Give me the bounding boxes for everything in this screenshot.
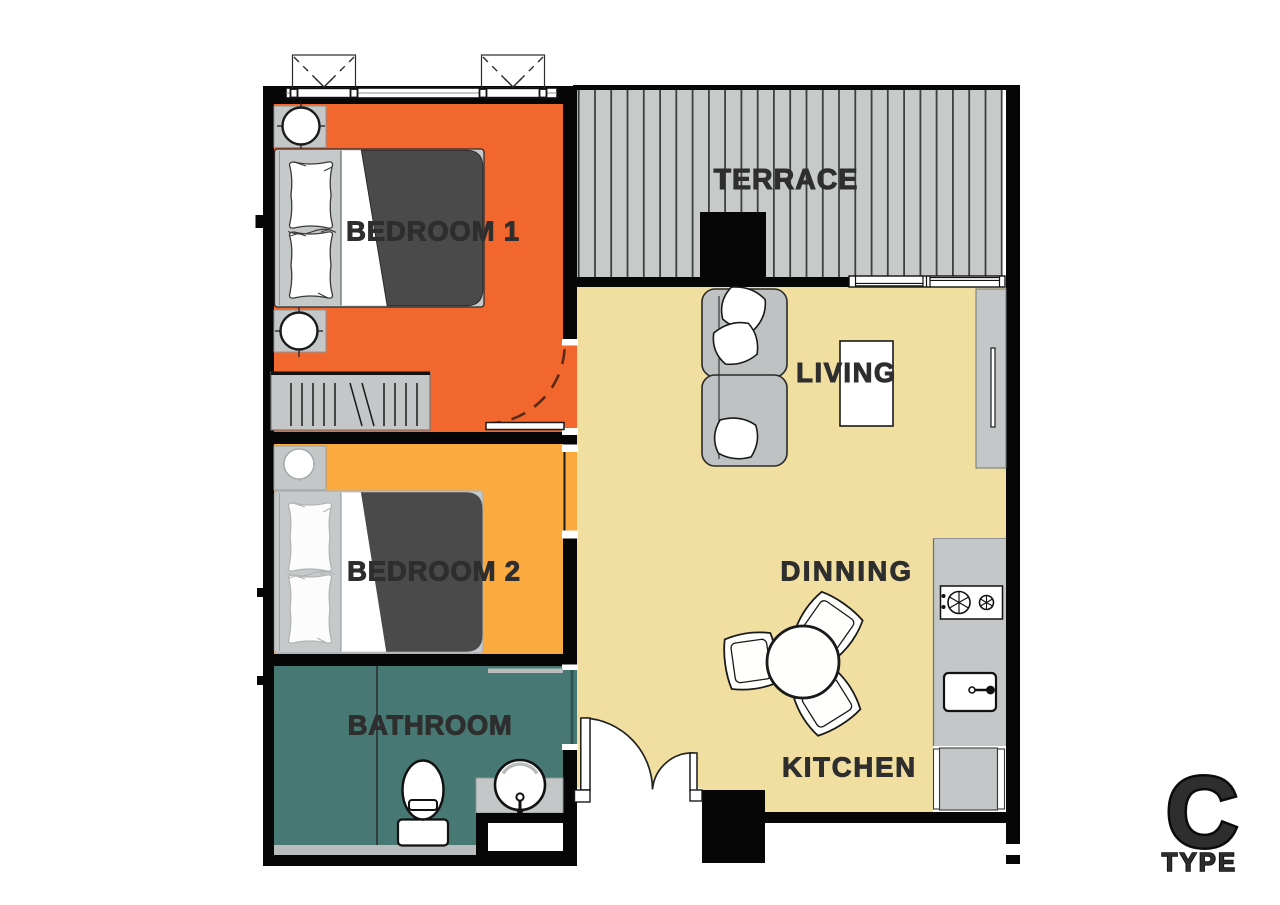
svg-text:TYPE: TYPE <box>1162 849 1237 877</box>
svg-text:TERRACE: TERRACE <box>714 164 859 196</box>
svg-text:KITCHEN: KITCHEN <box>782 752 917 783</box>
svg-text:BATHROOM: BATHROOM <box>348 710 513 741</box>
svg-text:LIVING: LIVING <box>796 357 897 388</box>
svg-text:DINNING: DINNING <box>781 556 914 587</box>
svg-text:BEDROOM 1: BEDROOM 1 <box>346 216 520 247</box>
svg-text:BEDROOM 2: BEDROOM 2 <box>347 556 521 587</box>
